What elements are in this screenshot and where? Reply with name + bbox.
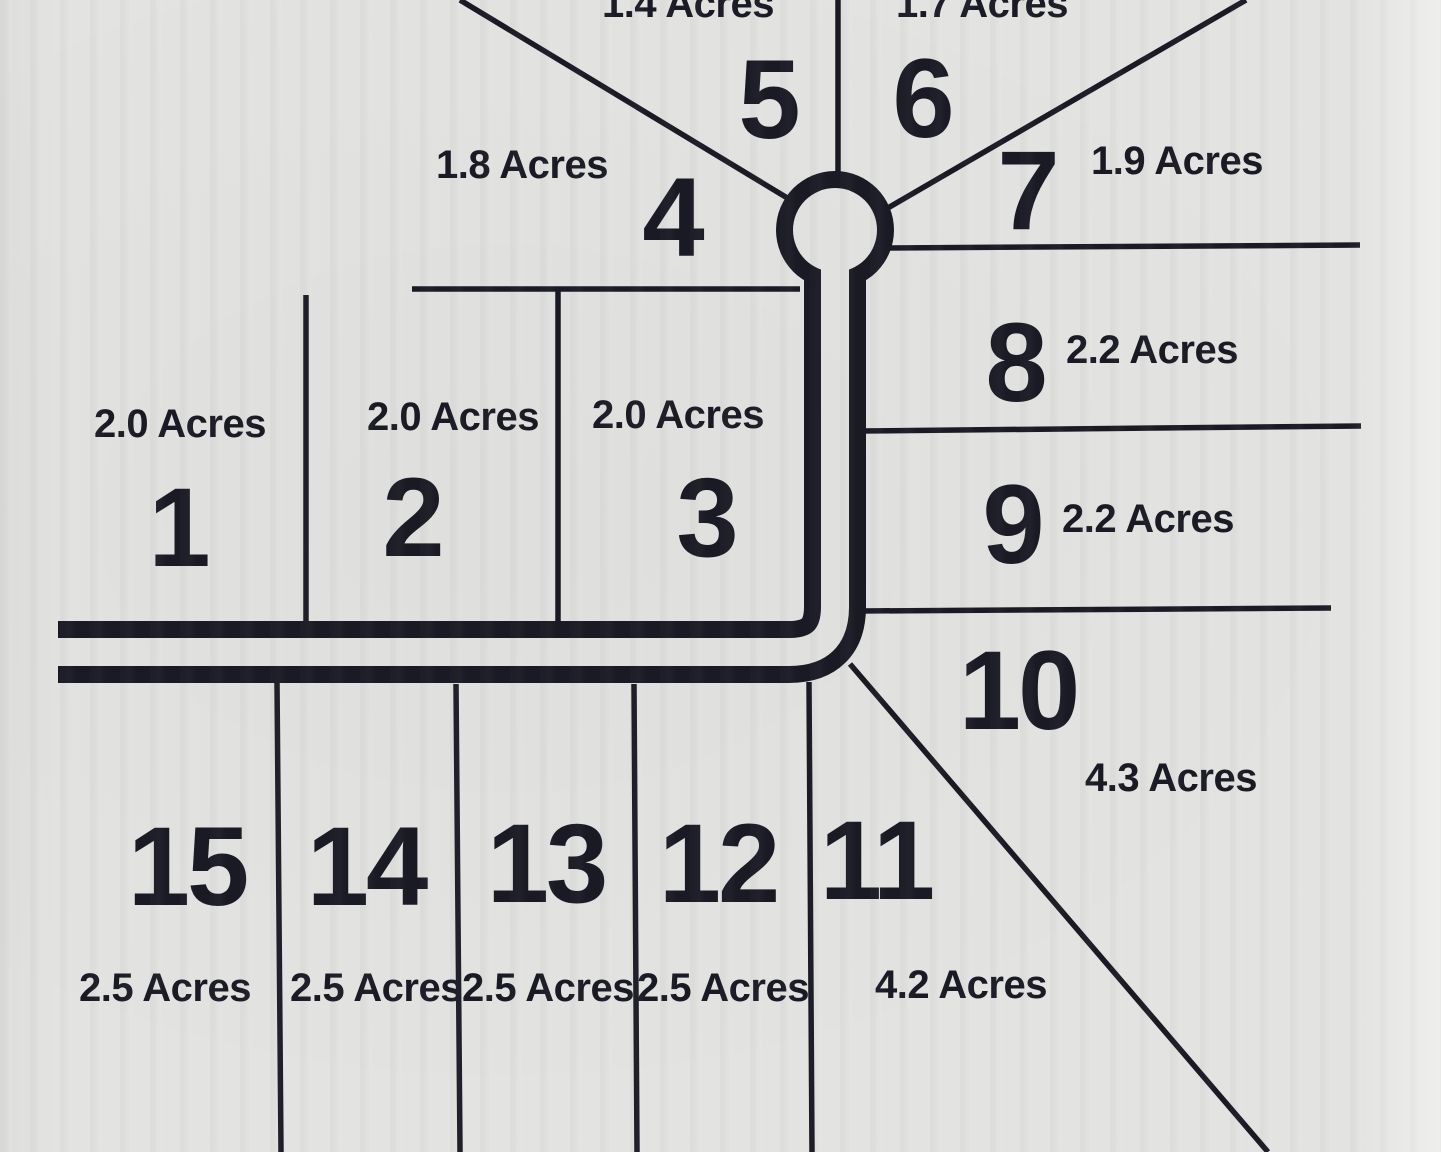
boundary-lot12-lot11 [809, 682, 812, 1152]
lot-number-14: 14 [307, 811, 426, 923]
boundary-lot8-lot9 [860, 426, 1361, 431]
boundary-lot15-lot14 [277, 682, 281, 1152]
lot-number-9: 9 [982, 469, 1041, 581]
lot-acreage-14: 2.5 Acres [290, 968, 462, 1008]
plat-map: 12.0 Acres22.0 Acres32.0 Acres41.8 Acres… [0, 0, 1441, 1152]
lot-number-4: 4 [642, 162, 701, 274]
lot-number-13: 13 [487, 808, 606, 920]
lot-acreage-15: 2.5 Acres [79, 968, 251, 1008]
boundary-lot7-lot8 [888, 245, 1360, 248]
lot-number-7: 7 [997, 135, 1056, 247]
lot-number-3: 3 [676, 462, 735, 574]
lot-acreage-12: 2.5 Acres [637, 968, 809, 1008]
lot-acreage-3: 2.0 Acres [592, 395, 764, 435]
lot-number-6: 6 [892, 43, 951, 155]
boundary-lot9-lot10 [860, 608, 1331, 611]
lot-number-8: 8 [985, 307, 1044, 419]
lot-number-11: 11 [820, 805, 932, 917]
lot-acreage-4: 1.8 Acres [436, 145, 608, 185]
lot-acreage-13: 2.5 Acres [462, 968, 634, 1008]
boundary-lot14-lot13 [456, 684, 460, 1152]
boundary-lot13-lot12 [634, 684, 637, 1152]
lot-number-10: 10 [959, 635, 1078, 747]
lot-acreage-9: 2.2 Acres [1062, 499, 1234, 539]
lot-number-15: 15 [128, 811, 247, 923]
lot-acreage-6: 1.7 Acres [896, 0, 1068, 24]
lot-number-12: 12 [659, 808, 778, 920]
lot-number-2: 2 [382, 462, 441, 574]
lot-acreage-7: 1.9 Acres [1091, 141, 1263, 181]
lot-acreage-10: 4.3 Acres [1085, 758, 1257, 798]
lot-acreage-5: 1.4 Acres [602, 0, 774, 24]
lot-number-5: 5 [738, 44, 797, 156]
lot-number-1: 1 [148, 472, 207, 584]
lot-acreage-11: 4.2 Acres [875, 965, 1047, 1005]
lot-acreage-1: 2.0 Acres [94, 404, 266, 444]
lot-acreage-2: 2.0 Acres [367, 397, 539, 437]
lot-acreage-8: 2.2 Acres [1066, 330, 1238, 370]
